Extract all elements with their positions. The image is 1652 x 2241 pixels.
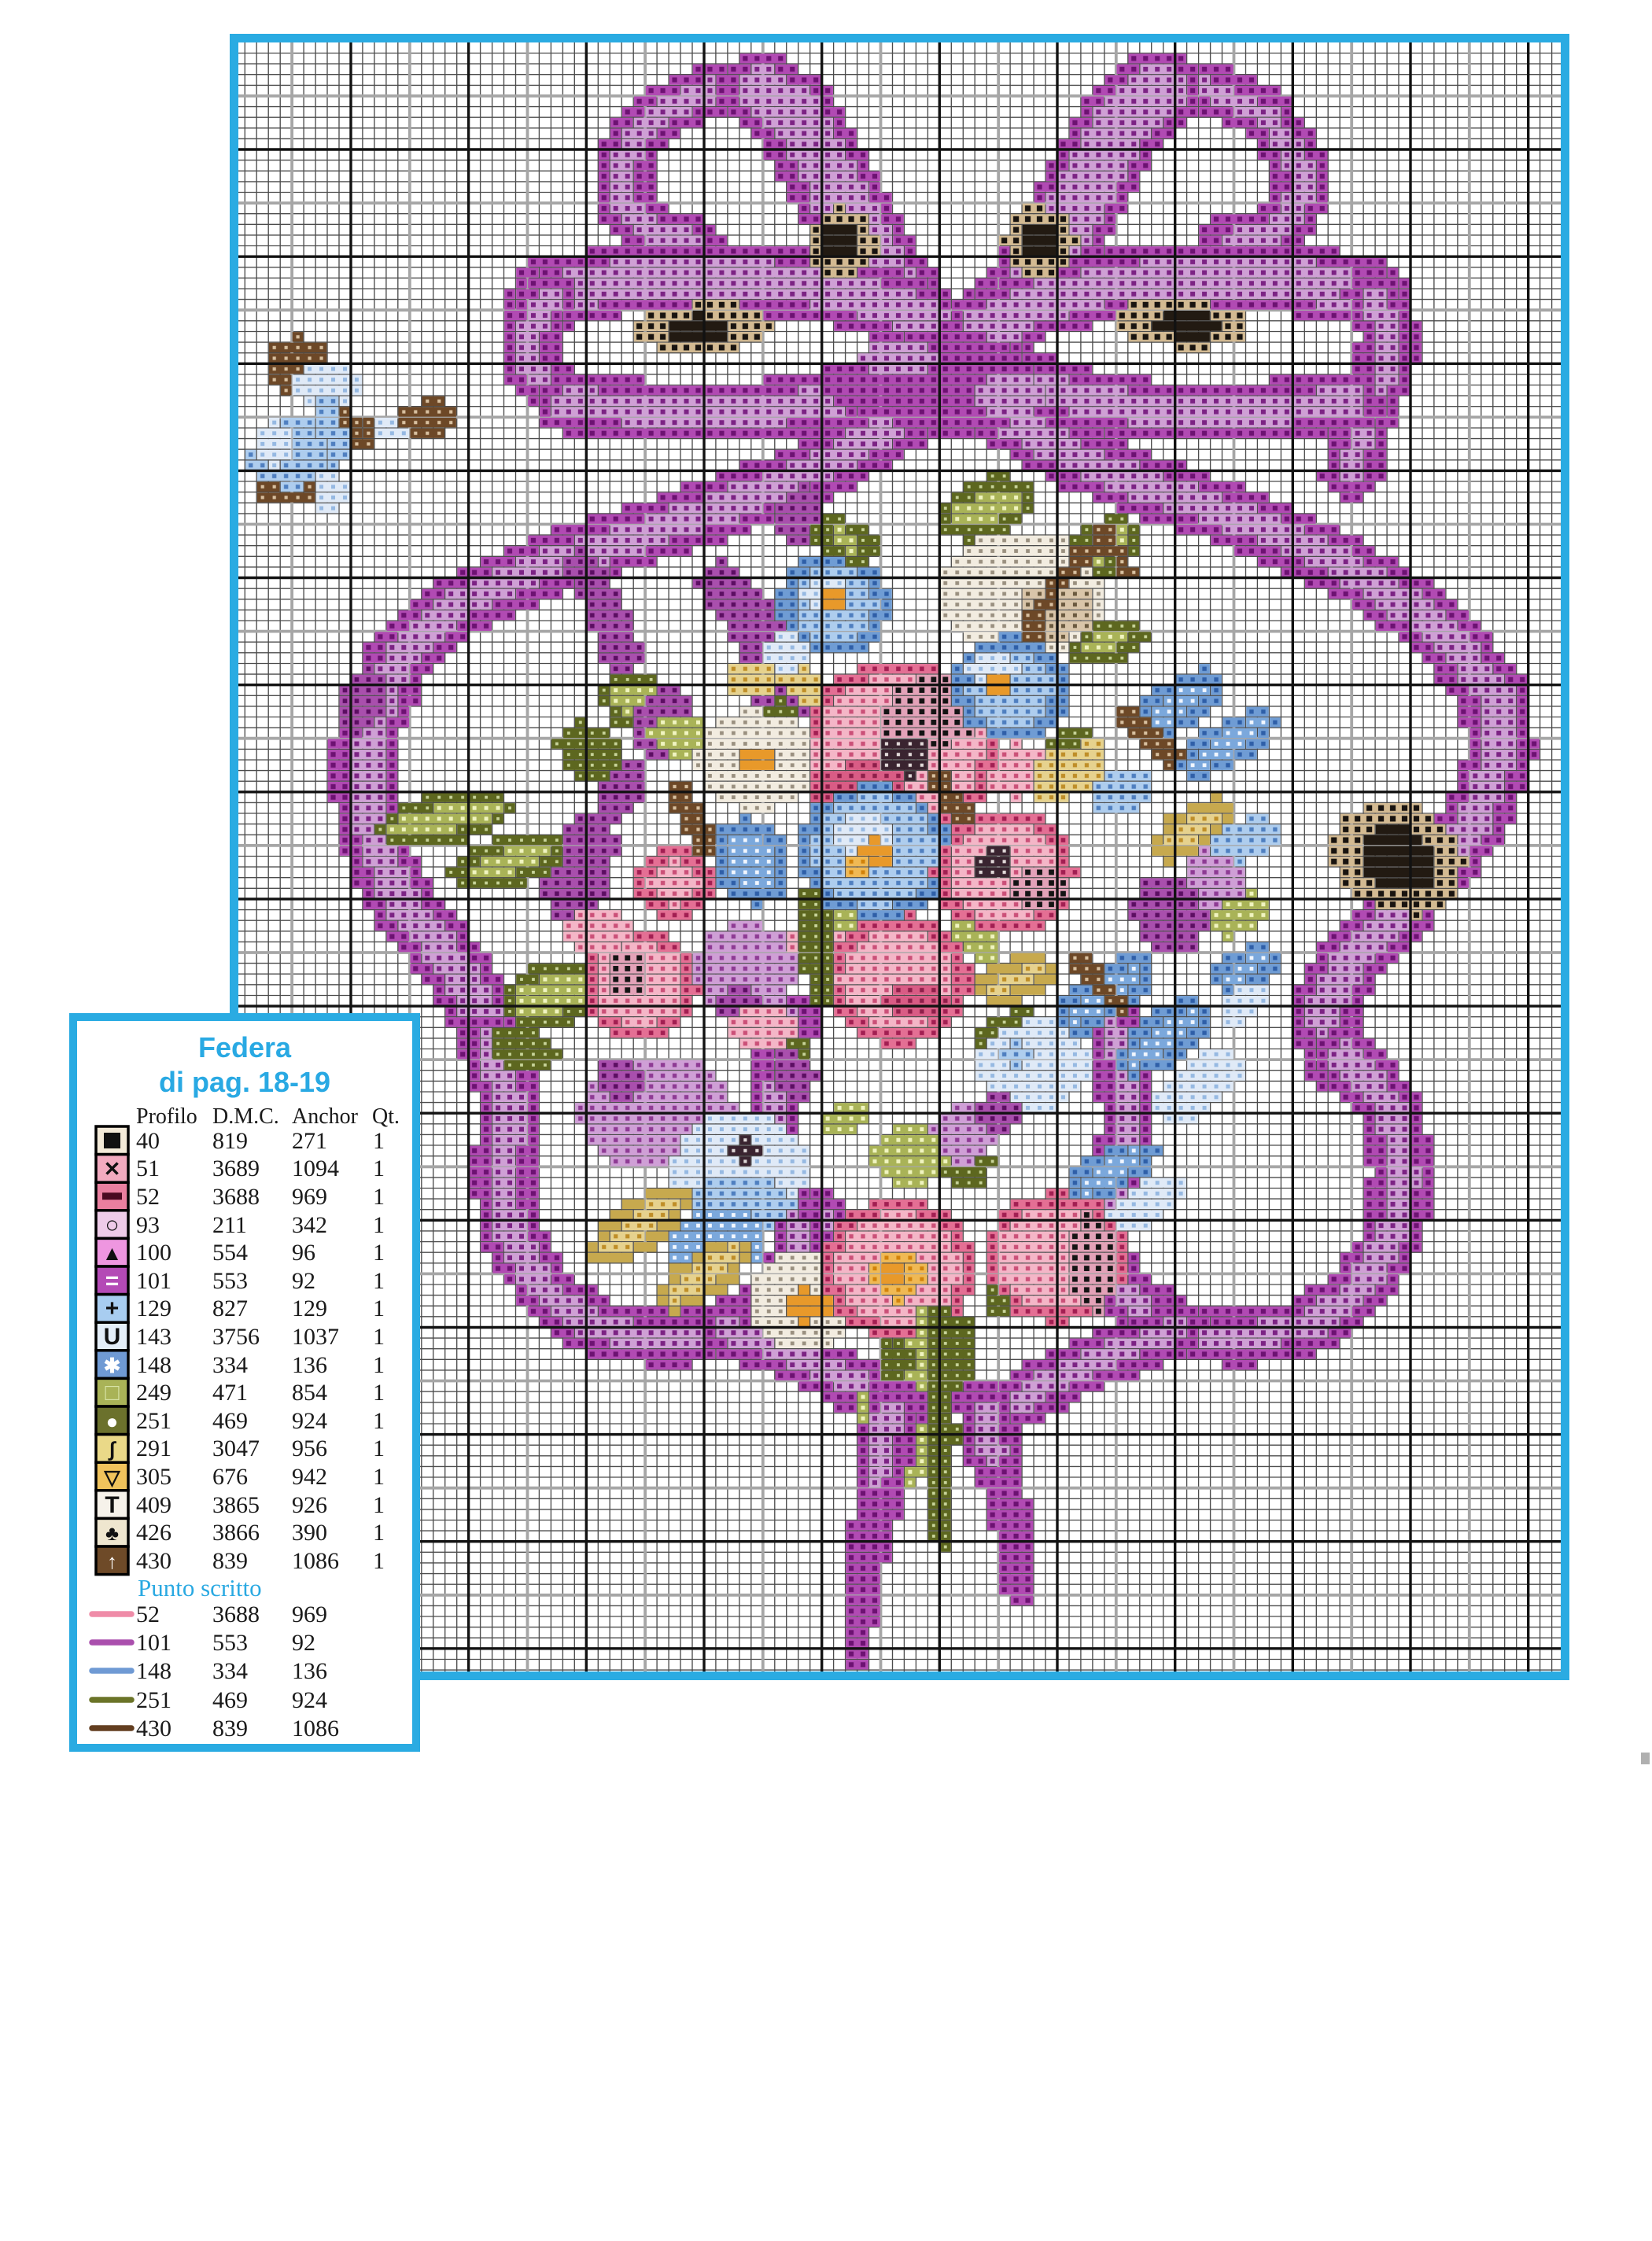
- svg-text:♣: ♣: [105, 1521, 119, 1545]
- svg-text:469: 469: [212, 1687, 248, 1713]
- svg-text:Punto scritto: Punto scritto: [138, 1574, 262, 1602]
- svg-text:1: 1: [373, 1156, 385, 1181]
- svg-text:827: 827: [212, 1296, 248, 1321]
- svg-text:3866: 3866: [212, 1520, 260, 1546]
- svg-text:1: 1: [373, 1296, 385, 1321]
- svg-text:1086: 1086: [292, 1548, 339, 1574]
- svg-text:1: 1: [373, 1436, 385, 1461]
- svg-text:553: 553: [212, 1268, 248, 1294]
- svg-text:839: 839: [212, 1548, 248, 1574]
- svg-text:1: 1: [373, 1380, 385, 1406]
- svg-text:1: 1: [373, 1548, 385, 1574]
- svg-text:430: 430: [136, 1548, 171, 1574]
- svg-text:143: 143: [136, 1324, 171, 1350]
- svg-text:1: 1: [373, 1212, 385, 1238]
- svg-text:□: □: [105, 1380, 120, 1406]
- svg-text:969: 969: [292, 1602, 327, 1627]
- svg-text:1: 1: [373, 1520, 385, 1546]
- svg-text:334: 334: [212, 1352, 248, 1378]
- svg-text:1: 1: [373, 1408, 385, 1434]
- svg-text:Federa: Federa: [198, 1031, 292, 1063]
- svg-text:1037: 1037: [292, 1324, 339, 1350]
- svg-text:3047: 3047: [212, 1436, 260, 1461]
- svg-text:D.M.C.: D.M.C.: [212, 1104, 279, 1129]
- svg-text:▽: ▽: [104, 1465, 121, 1489]
- svg-text:✕: ✕: [104, 1157, 121, 1181]
- svg-text:839: 839: [212, 1716, 248, 1742]
- svg-text:554: 554: [212, 1240, 248, 1266]
- svg-text:↑: ↑: [107, 1550, 117, 1573]
- svg-text:●: ●: [106, 1410, 119, 1433]
- svg-text:129: 129: [136, 1296, 171, 1321]
- svg-text:3756: 3756: [212, 1324, 260, 1350]
- svg-text:di pag. 18-19: di pag. 18-19: [159, 1066, 330, 1098]
- svg-text:819: 819: [212, 1128, 248, 1154]
- svg-text:+: +: [105, 1296, 120, 1321]
- svg-text:51: 51: [136, 1156, 160, 1181]
- svg-text:148: 148: [136, 1352, 171, 1378]
- svg-text:249: 249: [136, 1380, 171, 1406]
- svg-text:342: 342: [292, 1212, 327, 1238]
- svg-text:1: 1: [373, 1268, 385, 1294]
- svg-text:924: 924: [292, 1408, 327, 1434]
- svg-text:Qt.: Qt.: [372, 1104, 400, 1129]
- svg-text:1: 1: [373, 1324, 385, 1350]
- svg-text:101: 101: [136, 1630, 171, 1656]
- svg-text:854: 854: [292, 1380, 327, 1406]
- svg-text:52: 52: [136, 1184, 160, 1210]
- svg-text:96: 96: [292, 1240, 315, 1266]
- svg-text:100: 100: [136, 1240, 171, 1266]
- svg-text:101: 101: [136, 1268, 171, 1294]
- svg-text:1086: 1086: [292, 1716, 339, 1742]
- svg-text:956: 956: [292, 1436, 327, 1461]
- svg-text:926: 926: [292, 1492, 327, 1518]
- svg-text:426: 426: [136, 1520, 171, 1546]
- svg-text:Anchor: Anchor: [292, 1104, 359, 1129]
- svg-text:✱: ✱: [104, 1354, 121, 1377]
- svg-text:148: 148: [136, 1658, 171, 1684]
- svg-text:1: 1: [373, 1492, 385, 1518]
- svg-text:430: 430: [136, 1716, 171, 1742]
- svg-text:3689: 3689: [212, 1156, 260, 1181]
- svg-text:676: 676: [212, 1464, 248, 1490]
- svg-text:390: 390: [292, 1520, 327, 1546]
- svg-text:40: 40: [136, 1128, 160, 1154]
- svg-text:1: 1: [373, 1352, 385, 1378]
- svg-text:3688: 3688: [212, 1184, 260, 1210]
- svg-text:U: U: [104, 1324, 121, 1350]
- svg-text:969: 969: [292, 1184, 327, 1210]
- svg-text:409: 409: [136, 1492, 171, 1518]
- svg-text:924: 924: [292, 1687, 327, 1713]
- svg-text:1: 1: [373, 1184, 385, 1210]
- svg-text:3688: 3688: [212, 1602, 260, 1627]
- svg-text:469: 469: [212, 1408, 248, 1434]
- svg-text:291: 291: [136, 1436, 171, 1461]
- svg-text:136: 136: [292, 1658, 327, 1684]
- svg-text:○: ○: [105, 1212, 119, 1238]
- svg-text:=: =: [105, 1268, 120, 1294]
- svg-text:1: 1: [373, 1240, 385, 1266]
- svg-text:305: 305: [136, 1464, 171, 1490]
- svg-text:136: 136: [292, 1352, 327, 1378]
- svg-text:93: 93: [136, 1212, 160, 1238]
- svg-text:92: 92: [292, 1630, 315, 1656]
- svg-text:1094: 1094: [292, 1156, 339, 1181]
- svg-text:271: 271: [292, 1128, 327, 1154]
- svg-text:1: 1: [373, 1464, 385, 1490]
- svg-text:471: 471: [212, 1380, 248, 1406]
- svg-text:553: 553: [212, 1630, 248, 1656]
- svg-text:334: 334: [212, 1658, 248, 1684]
- svg-text:129: 129: [292, 1296, 327, 1321]
- svg-text:251: 251: [136, 1408, 171, 1434]
- svg-text:251: 251: [136, 1687, 171, 1713]
- svg-text:3865: 3865: [212, 1492, 260, 1518]
- svg-text:Profilo: Profilo: [136, 1104, 197, 1129]
- svg-text:92: 92: [292, 1268, 315, 1294]
- svg-text:1: 1: [373, 1128, 385, 1154]
- svg-text:▲: ▲: [102, 1241, 123, 1265]
- svg-text:T: T: [105, 1492, 119, 1518]
- svg-text:52: 52: [136, 1602, 160, 1627]
- svg-text:942: 942: [292, 1464, 327, 1490]
- svg-text:211: 211: [212, 1212, 247, 1238]
